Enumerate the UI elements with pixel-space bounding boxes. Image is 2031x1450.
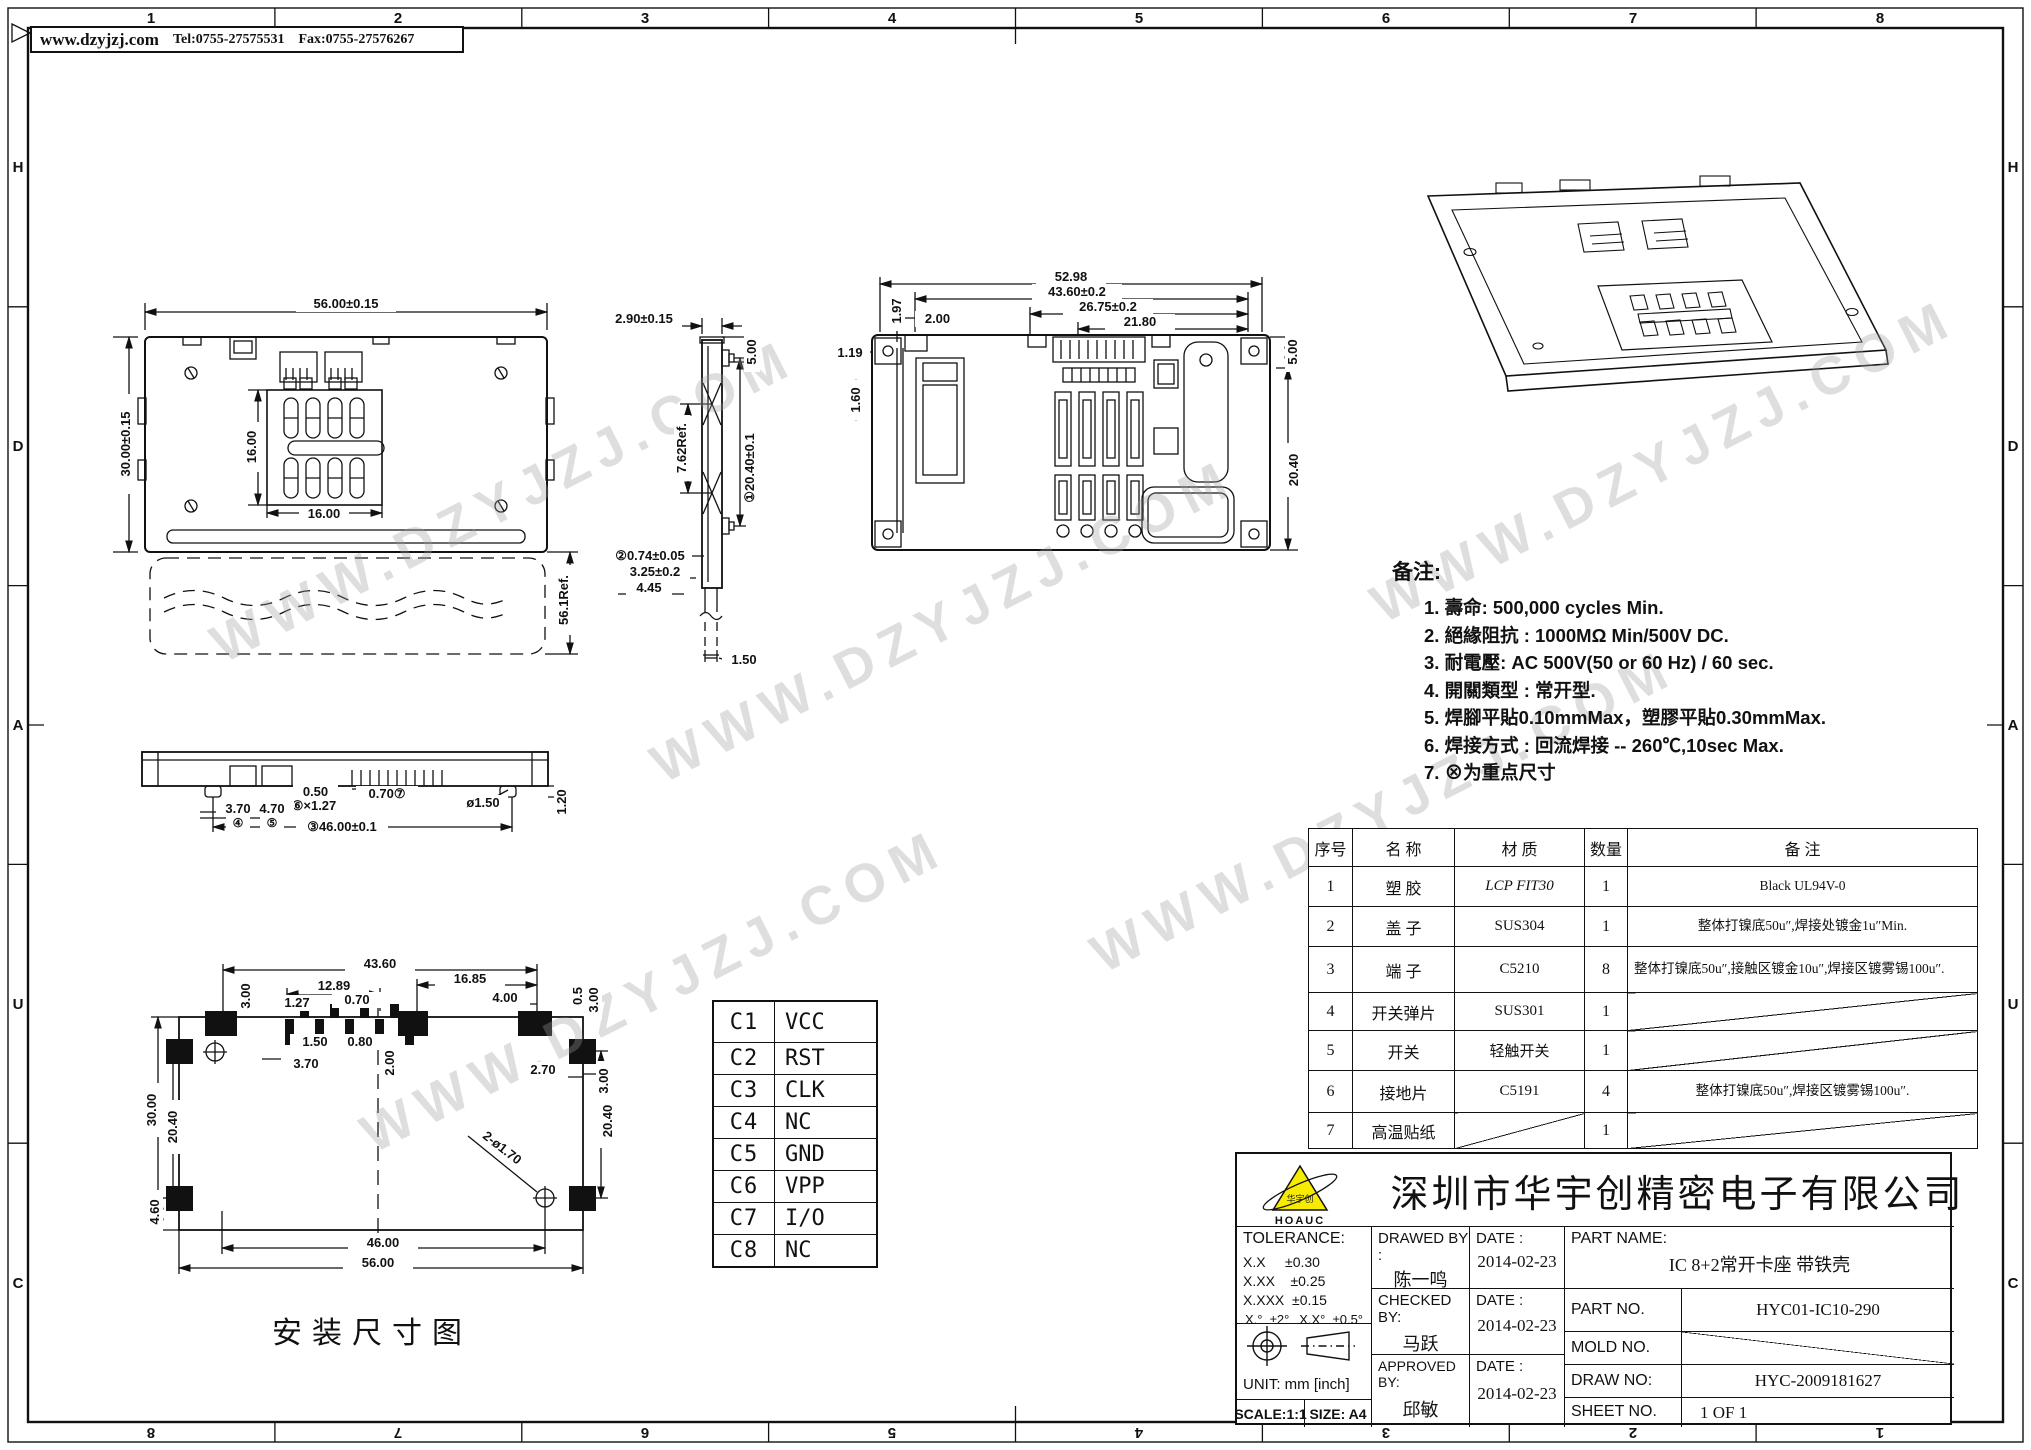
cell: LCP FIT30 — [1455, 867, 1585, 907]
cell: 4 — [1585, 1071, 1628, 1113]
scale-label: SCALE:1:1 — [1237, 1400, 1305, 1427]
cell: 1 — [1585, 1031, 1628, 1071]
col-header: 数量 — [1585, 829, 1628, 867]
dim-label: 2.00 — [382, 1043, 398, 1083]
col-header: 序号 — [1309, 829, 1353, 867]
company-logo: 华宇创 HOAUC — [1255, 1158, 1395, 1226]
dim-label: 1.20 — [554, 782, 570, 822]
dim-label: 3.25±0.2 — [620, 564, 690, 580]
pin-id: C3 — [714, 1075, 775, 1106]
sheet-no-label: SHEET NO. — [1565, 1398, 1682, 1427]
zone-letter: D — [2004, 438, 2022, 455]
pin-signal: NC — [775, 1107, 876, 1138]
pin-id: C4 — [714, 1107, 775, 1138]
zone-letter: U — [9, 996, 27, 1013]
rear-view-linework — [846, 277, 1298, 550]
dim-label: 3.00 — [238, 976, 254, 1016]
draw-no-value: HYC-2009181627 — [1682, 1365, 1954, 1398]
zone-letter: D — [9, 438, 27, 455]
sheet-no-value: 1 OF 1 — [1682, 1398, 1954, 1427]
dim-label: 3.00 — [586, 980, 602, 1020]
tolerance-line: X.X ±0.30 — [1237, 1248, 1371, 1270]
dim-label: 1.19 — [830, 345, 870, 361]
dim-label: 16.00 — [299, 506, 349, 522]
cell: 1 — [1309, 867, 1353, 907]
unit-label: UNIT: mm [inch] — [1237, 1373, 1371, 1393]
approved-by-label: APPROVED BY: — [1372, 1355, 1469, 1390]
zone-number: 5 — [883, 1424, 901, 1441]
mold-no-label: MOLD NO. — [1565, 1332, 1682, 1365]
side-view-linework — [618, 318, 756, 662]
mold-no-value — [1682, 1332, 1954, 1365]
cell: 6 — [1309, 1071, 1353, 1113]
company-name: 深圳市华宇创精密电子有限公司 — [1405, 1154, 1950, 1227]
title-block: 华宇创 HOAUC 深圳市华宇创精密电子有限公司 TOLERANCE: X.X … — [1235, 1152, 1952, 1425]
col-header: 材 质 — [1455, 829, 1585, 867]
dim-label: 7.62Ref. — [674, 415, 690, 481]
zone-letter: A — [2004, 717, 2022, 734]
zone-number: 4 — [1130, 1424, 1148, 1441]
cell: 高温贴纸 — [1353, 1113, 1455, 1149]
pin-row: C8NC — [714, 1234, 876, 1266]
dim-label: 56.00 — [343, 1255, 413, 1271]
date-label: DATE : — [1470, 1289, 1564, 1309]
pin-signal: VPP — [775, 1171, 876, 1202]
note-item: 1. 壽命: 500,000 cycles Min. — [1392, 594, 1972, 622]
cell: 1 — [1585, 907, 1628, 947]
cell: C5210 — [1455, 947, 1585, 993]
parts-header-row: 序号 名 称 材 质 数量 备 注 — [1309, 829, 1978, 867]
dim-label: 21.80 — [1105, 314, 1175, 330]
cell: Black UL94V-0 — [1628, 867, 1978, 907]
parts-row: 7 高温贴纸 1 — [1309, 1113, 1978, 1149]
pin-signal: I/O — [775, 1203, 876, 1234]
website: www.dzyjzj.com — [40, 30, 159, 50]
cell: 接地片 — [1353, 1071, 1455, 1113]
dim-label: ②0.74±0.05 — [608, 548, 692, 564]
tolerance-label: TOLERANCE: — [1237, 1227, 1371, 1248]
dim-label: 0.70 — [332, 992, 382, 1008]
pin-id: C8 — [714, 1235, 775, 1266]
note-item: 5. 焊腳平貼0.10mmMax，塑膠平貼0.30mmMax. — [1392, 704, 1972, 732]
draw-no-label: DRAW NO: — [1565, 1365, 1682, 1398]
isometric-view-linework — [1428, 176, 1888, 391]
dim-label: 1.97 — [889, 291, 905, 331]
dim-label: 0.5 — [570, 976, 586, 1016]
cell: 7 — [1309, 1113, 1353, 1149]
cell: 5 — [1309, 1031, 1353, 1071]
zone-letter: H — [2004, 159, 2022, 176]
zone-letter: H — [9, 159, 27, 176]
checked-by-label: CHECKED BY: — [1372, 1289, 1469, 1326]
cell: 8 — [1585, 947, 1628, 993]
cell: 端 子 — [1353, 947, 1455, 993]
cell: 1 — [1585, 993, 1628, 1031]
part-name-value: IC 8+2常开卡座 带铁壳 — [1565, 1248, 1954, 1280]
note-item: 4. 開關類型 : 常开型. — [1392, 677, 1972, 705]
note-item: 3. 耐電壓: AC 500V(50 or 60 Hz) / 60 sec. — [1392, 649, 1972, 677]
pin-row: C2RST — [714, 1042, 876, 1074]
pin-id: C7 — [714, 1203, 775, 1234]
dim-label: 30.00±0.15 — [118, 394, 134, 494]
zone-letter: C — [9, 1275, 27, 1292]
dim-label: 43.60±0.2 — [1032, 284, 1122, 300]
dim-label: 52.98 — [1036, 269, 1106, 285]
zone-number: 1 — [142, 10, 160, 27]
dim-label: ④ — [226, 815, 250, 831]
dim-label: 43.60 — [345, 956, 415, 972]
cell: 轻触开关 — [1455, 1031, 1585, 1071]
cell — [1628, 1113, 1978, 1149]
cell: SUS304 — [1455, 907, 1585, 947]
cell — [1628, 993, 1978, 1031]
parts-row: 1 塑 胶 LCP FIT30 1 Black UL94V-0 — [1309, 867, 1978, 907]
pin-row: C1VCC — [714, 1002, 876, 1042]
zone-number: 6 — [1377, 10, 1395, 27]
date-label: DATE : — [1470, 1227, 1564, 1247]
cell: 盖 子 — [1353, 907, 1455, 947]
pin-signal: RST — [775, 1043, 876, 1074]
col-header: 名 称 — [1353, 829, 1455, 867]
checked-date: 2014-02-23 — [1470, 1309, 1564, 1343]
cell: 塑 胶 — [1353, 867, 1455, 907]
footprint-linework — [150, 964, 608, 1274]
logo-inner-text: 华宇创 — [1286, 1193, 1313, 1204]
cell: C5191 — [1455, 1071, 1585, 1113]
note-item: 7. ⊗为重点尺寸 — [1392, 759, 1972, 787]
pin-signal: GND — [775, 1139, 876, 1170]
dim-label: 5.00 — [744, 332, 760, 372]
dim-label: 16.85 — [435, 971, 505, 987]
dim-label: 46.00 — [348, 1235, 418, 1251]
zone-letter: C — [2004, 1275, 2022, 1292]
cell: 开关 — [1353, 1031, 1455, 1071]
dim-label: 3.70 — [281, 1056, 331, 1072]
tolerance-line: X.XXX ±0.15 — [1237, 1289, 1371, 1308]
note-item: 2. 絕緣阻抗 : 1000MΩ Min/500V DC. — [1392, 622, 1972, 650]
pin-assignment-table: C1VCC C2RST C3CLK C4NC C5GND C6VPP C7I/O… — [712, 1000, 878, 1268]
parts-table: 序号 名 称 材 质 数量 备 注 1 塑 胶 LCP FIT30 1 Blac… — [1308, 828, 1978, 1149]
parts-row: 3 端 子 C5210 8 整体打镍底50u″,接触区镀金10u″,焊接区镀雾锡… — [1309, 947, 1978, 993]
tolerance-line: X.XX ±0.25 — [1237, 1270, 1371, 1289]
projection-symbol — [1237, 1324, 1370, 1368]
cell: 整体打镍底50u″,焊接处镀金1u″Min. — [1628, 907, 1978, 947]
svg-text:HOAUC: HOAUC — [1275, 1215, 1325, 1226]
dim-label: 4.60 — [147, 1190, 163, 1234]
zone-number: 8 — [142, 1424, 160, 1441]
pin-row: C4NC — [714, 1106, 876, 1138]
fax: Fax:0755-27576267 — [298, 32, 414, 48]
cell: 整体打镍底50u″,接触区镀金10u″,焊接区镀雾锡100u″. — [1628, 947, 1978, 993]
notes-block: 备注: 1. 壽命: 500,000 cycles Min. 2. 絕緣阻抗 :… — [1392, 556, 1972, 787]
cell: 整体打镍底50u″,焊接区镀雾锡100u″. — [1628, 1071, 1978, 1113]
dim-label: 1.50 — [722, 652, 766, 668]
pin-row: C7I/O — [714, 1202, 876, 1234]
dim-label: 4.00 — [480, 990, 530, 1006]
col-header: 备 注 — [1628, 829, 1978, 867]
top-view-linework — [113, 303, 578, 654]
zone-letter: U — [2004, 996, 2022, 1013]
dim-label: 1.60 — [848, 380, 864, 420]
dim-label: 20.40 — [1286, 443, 1302, 497]
dim-label: 56.00±0.15 — [296, 296, 396, 312]
cell — [1628, 1031, 1978, 1071]
pin-id: C6 — [714, 1171, 775, 1202]
drawed-by-label: DRAWED BY : — [1372, 1227, 1469, 1264]
drawing-sheet: WWW.DZYJZJ.COM WWW.DZYJZJ.COM WWW.DZYJZJ… — [0, 0, 2031, 1450]
part-name-label: PART NAME: — [1565, 1227, 1954, 1248]
dim-label: 1.27 — [272, 995, 322, 1011]
dim-label: 1.50 — [290, 1034, 340, 1050]
dim-label: ø1.50 — [458, 795, 508, 811]
cell: 3 — [1309, 947, 1353, 993]
cell: 2 — [1309, 907, 1353, 947]
pin-row: C5GND — [714, 1138, 876, 1170]
dim-label: 2.00 — [915, 311, 960, 327]
part-no-value: HYC01-IC10-290 — [1682, 1289, 1954, 1332]
zone-number: 7 — [389, 1424, 407, 1441]
notes-title: 备注: — [1392, 556, 1972, 586]
zone-number: 5 — [1130, 10, 1148, 27]
drawed-date: 2014-02-23 — [1470, 1247, 1564, 1277]
zone-number: 7 — [1624, 10, 1642, 27]
parts-row: 2 盖 子 SUS304 1 整体打镍底50u″,焊接处镀金1u″Min. — [1309, 907, 1978, 947]
dim-label: 0.80 — [335, 1034, 385, 1050]
cell: 1 — [1585, 867, 1628, 907]
pin-id: C1 — [714, 1002, 775, 1042]
zone-number: 8 — [1871, 10, 1889, 27]
pin-id: C2 — [714, 1043, 775, 1074]
cell — [1455, 1113, 1585, 1149]
dim-label: 0.70⑦ — [356, 786, 418, 802]
size-label: SIZE: A4 — [1305, 1400, 1372, 1427]
dim-label: 20.40 — [600, 1094, 616, 1148]
cell: 1 — [1585, 1113, 1628, 1149]
parts-row: 5 开关 轻触开关 1 — [1309, 1031, 1978, 1071]
dim-label: 56.1Ref. — [556, 565, 572, 635]
dim-label: ①20.40±0.1 — [742, 422, 758, 514]
note-item: 6. 焊接方式 : 回流焊接 -- 260℃,10sec Max. — [1392, 732, 1972, 760]
mounting-view-caption: 安装尺寸图 — [237, 1308, 507, 1352]
pin-signal: VCC — [775, 1002, 876, 1042]
pin-id: C5 — [714, 1139, 775, 1170]
cell: 4 — [1309, 993, 1353, 1031]
approved-date: 2014-02-23 — [1470, 1375, 1564, 1413]
dim-label: 16.00 — [244, 422, 260, 472]
telephone: Tel:0755-27575531 — [173, 32, 284, 48]
dim-label: ⑤ — [260, 815, 284, 831]
pin-signal: CLK — [775, 1075, 876, 1106]
pin-signal: NC — [775, 1235, 876, 1266]
parts-row: 6 接地片 C5191 4 整体打镍底50u″,焊接区镀雾锡100u″. — [1309, 1071, 1978, 1113]
header-contact-box: www.dzyjzj.com Tel:0755-27575531 Fax:075… — [30, 26, 464, 53]
pin-row: C6VPP — [714, 1170, 876, 1202]
zone-number: 6 — [636, 1424, 654, 1441]
dim-label: 20.40 — [165, 1100, 181, 1154]
dim-label: ③46.00±0.1 — [296, 819, 388, 835]
zone-number: 2 — [389, 10, 407, 27]
parts-row: 4 开关弹片 SUS301 1 — [1309, 993, 1978, 1031]
date-label: DATE : — [1470, 1355, 1564, 1375]
dim-label: 4.45 — [626, 580, 672, 596]
approved-by-name: 邱敏 — [1372, 1390, 1469, 1428]
pin-row: C3CLK — [714, 1074, 876, 1106]
zone-number: 3 — [636, 10, 654, 27]
dim-label: 5.00 — [1285, 332, 1301, 372]
dim-label: 2.90±0.15 — [608, 311, 680, 327]
cell: SUS301 — [1455, 993, 1585, 1031]
dim-label: 30.00 — [144, 1083, 160, 1137]
part-no-label: PART NO. — [1565, 1289, 1682, 1332]
zone-number: 4 — [883, 10, 901, 27]
cell: 开关弹片 — [1353, 993, 1455, 1031]
dim-label: 26.75±0.2 — [1063, 299, 1153, 315]
zone-letter: A — [9, 717, 27, 734]
dim-label: 2.70 — [518, 1062, 568, 1078]
